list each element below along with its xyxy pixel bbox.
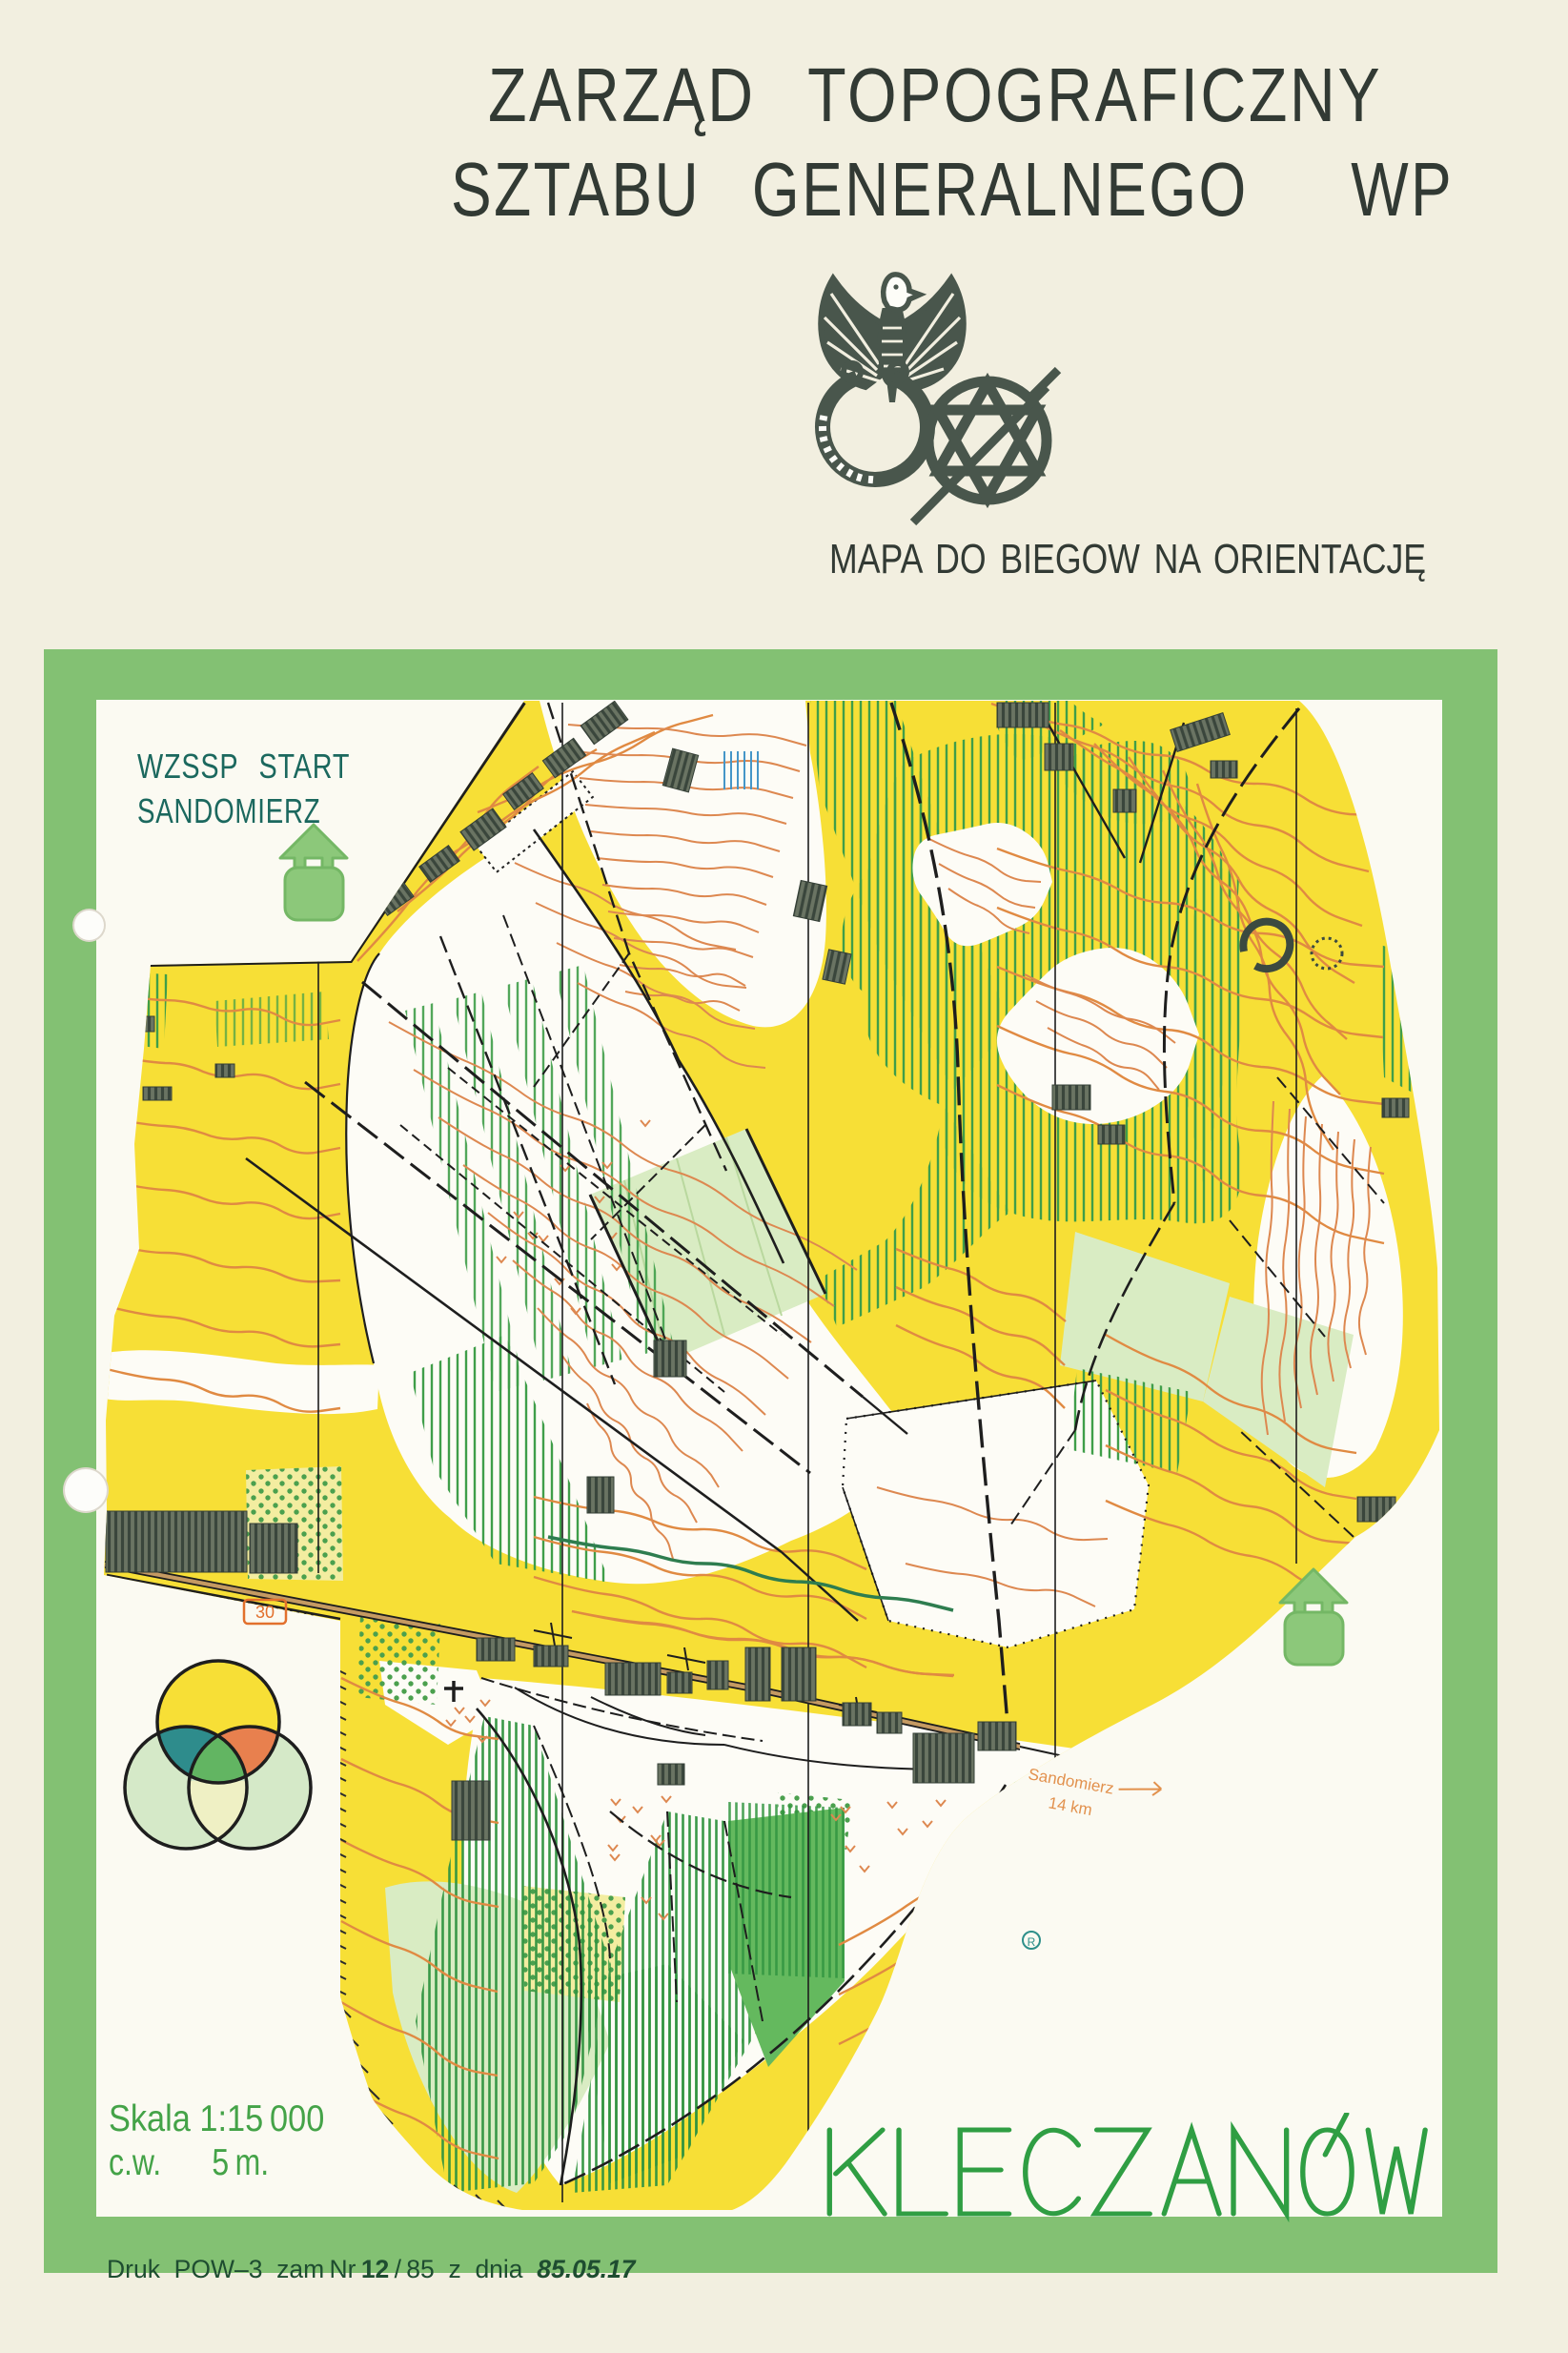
svg-text:30: 30 <box>255 1603 275 1622</box>
svg-text:R: R <box>1028 1935 1036 1949</box>
svg-text:Sandomierz: Sandomierz <box>1027 1765 1115 1797</box>
svg-text:14 km: 14 km <box>1047 1793 1093 1819</box>
